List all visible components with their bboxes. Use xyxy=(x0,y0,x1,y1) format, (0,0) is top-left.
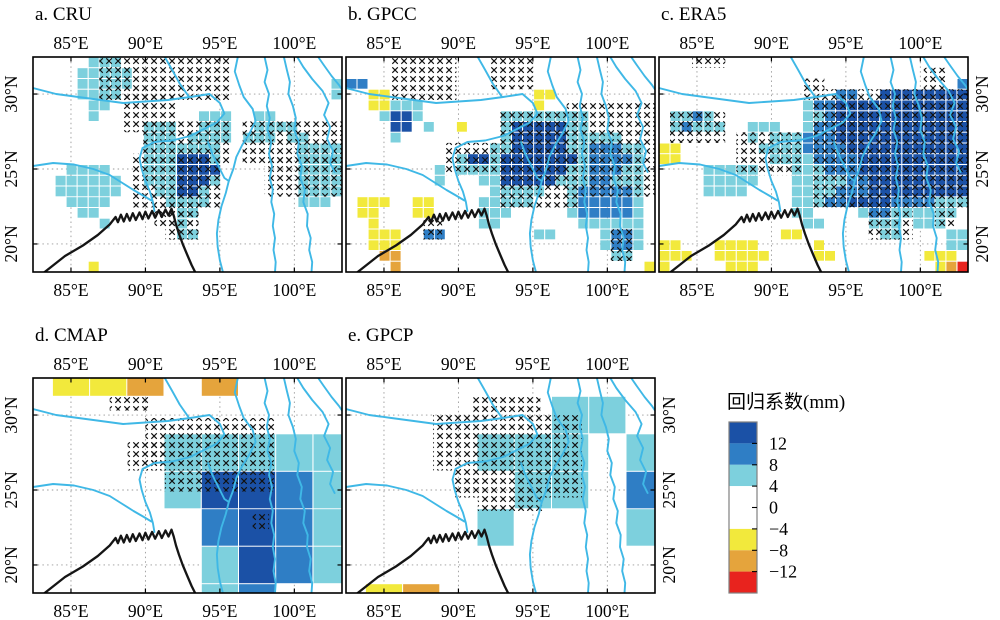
colorbar-legend: 回归系数(mm)12840−4−8−12 xyxy=(727,391,845,593)
figure-svg: a. CRU85°E85°E90°E90°E95°E95°E100°E100°E… xyxy=(0,0,1000,620)
river-line xyxy=(165,378,189,417)
lat-label-left: 20°N xyxy=(1,546,21,583)
lon-label-top: 90°E xyxy=(128,33,163,53)
panel-c-map xyxy=(659,57,968,280)
lat-label-right: 25°N xyxy=(659,471,679,508)
figure-root: a. CRU85°E85°E90°E90°E95°E95°E100°E100°E… xyxy=(0,0,1000,620)
lat-label-right: 30°N xyxy=(972,75,992,112)
lon-label-bottom: 90°E xyxy=(754,280,789,300)
lon-label-top: 90°E xyxy=(441,33,476,53)
lon-label-top: 95°E xyxy=(515,354,550,374)
colorbar-tick-label: −8 xyxy=(769,540,788,560)
colorbar-segment-darkblue xyxy=(729,422,757,443)
lon-label-bottom: 85°E xyxy=(53,601,88,620)
panel-b-map xyxy=(346,57,655,280)
colorbar-tick-label: 8 xyxy=(769,455,778,475)
lon-label-top: 85°E xyxy=(53,33,88,53)
panel-e: e. GPCP85°E85°E90°E90°E95°E95°E100°E100°… xyxy=(346,325,679,620)
lat-label-right: 30°N xyxy=(659,396,679,433)
panel-e-map xyxy=(346,378,655,601)
colorbar-tick-label: −12 xyxy=(769,562,797,582)
lat-label-right: 25°N xyxy=(972,150,992,187)
river-line xyxy=(33,484,151,522)
lon-label-top: 90°E xyxy=(128,354,163,374)
river-line xyxy=(346,484,464,522)
lon-label-top: 95°E xyxy=(202,354,237,374)
colorbar-segment-red xyxy=(729,572,757,593)
lon-label-top: 85°E xyxy=(53,354,88,374)
lat-label-left: 25°N xyxy=(1,150,21,187)
lon-label-bottom: 100°E xyxy=(585,601,629,620)
river-line xyxy=(318,378,342,411)
lon-label-top: 85°E xyxy=(366,354,401,374)
lon-label-bottom: 95°E xyxy=(515,601,550,620)
colorbar-tick-label: 12 xyxy=(769,433,787,453)
lon-label-top: 100°E xyxy=(585,354,629,374)
colorbar-tick-label: 0 xyxy=(769,498,778,518)
lon-label-bottom: 90°E xyxy=(128,601,163,620)
lon-label-top: 100°E xyxy=(272,33,316,53)
river-line xyxy=(631,57,655,90)
colorbar-segment-cyan xyxy=(729,465,757,486)
lon-label-top: 100°E xyxy=(898,33,942,53)
lat-label-right: 20°N xyxy=(972,225,992,262)
lat-label-right: 20°N xyxy=(659,546,679,583)
colorbar-segment-blue xyxy=(729,443,757,464)
lon-label-top: 85°E xyxy=(366,33,401,53)
lon-label-bottom: 95°E xyxy=(202,601,237,620)
panel-a: a. CRU85°E85°E90°E90°E95°E95°E100°E100°E… xyxy=(1,4,342,300)
lon-label-bottom: 85°E xyxy=(366,280,401,300)
lon-label-bottom: 95°E xyxy=(202,280,237,300)
legend-title: 回归系数(mm) xyxy=(727,391,845,413)
lon-label-top: 90°E xyxy=(441,354,476,374)
lat-label-left: 20°N xyxy=(1,225,21,262)
river-line xyxy=(631,378,655,411)
lat-label-left: 30°N xyxy=(1,396,21,433)
lon-label-bottom: 95°E xyxy=(828,280,863,300)
panel-d: d. CMAP85°E85°E90°E90°E95°E95°E100°E100°… xyxy=(1,325,342,620)
lat-label-left: 30°N xyxy=(1,75,21,112)
panel-title-a: a. CRU xyxy=(35,4,92,25)
lon-label-bottom: 100°E xyxy=(272,601,316,620)
lon-label-bottom: 85°E xyxy=(53,280,88,300)
lon-label-bottom: 100°E xyxy=(272,280,316,300)
lon-label-top: 95°E xyxy=(515,33,550,53)
panel-d-map xyxy=(33,378,342,601)
lon-label-bottom: 85°E xyxy=(366,601,401,620)
colorbar-tick-label: 4 xyxy=(769,476,778,496)
river-line xyxy=(944,57,968,90)
colorbar-tick-label: −4 xyxy=(769,519,788,539)
lon-label-bottom: 100°E xyxy=(898,280,942,300)
lon-label-bottom: 90°E xyxy=(128,280,163,300)
panel-c: c. ERA585°E85°E90°E90°E95°E95°E100°E100°… xyxy=(659,4,992,300)
river-line xyxy=(318,57,342,90)
panel-title-e: e. GPCP xyxy=(348,325,413,346)
panel-title-b: b. GPCC xyxy=(348,4,417,25)
panel-b: b. GPCC85°E85°E90°E90°E95°E95°E100°E100°… xyxy=(346,4,655,300)
panel-title-d: d. CMAP xyxy=(35,325,108,346)
significance-hatch xyxy=(390,57,655,261)
lon-label-top: 95°E xyxy=(202,33,237,53)
lon-label-bottom: 85°E xyxy=(679,280,714,300)
colorbar-segment-yellow xyxy=(729,529,757,550)
lon-label-bottom: 95°E xyxy=(515,280,550,300)
lon-label-top: 85°E xyxy=(679,33,714,53)
lon-label-top: 100°E xyxy=(272,354,316,374)
lon-label-top: 95°E xyxy=(828,33,863,53)
lon-label-top: 100°E xyxy=(585,33,629,53)
lat-label-left: 25°N xyxy=(1,471,21,508)
lon-label-top: 90°E xyxy=(754,33,789,53)
lon-label-bottom: 90°E xyxy=(441,280,476,300)
colorbar-segment-orange xyxy=(729,550,757,571)
panel-a-map xyxy=(33,57,342,280)
panel-title-c: c. ERA5 xyxy=(661,4,726,25)
lon-label-bottom: 100°E xyxy=(585,280,629,300)
lon-label-bottom: 90°E xyxy=(441,601,476,620)
